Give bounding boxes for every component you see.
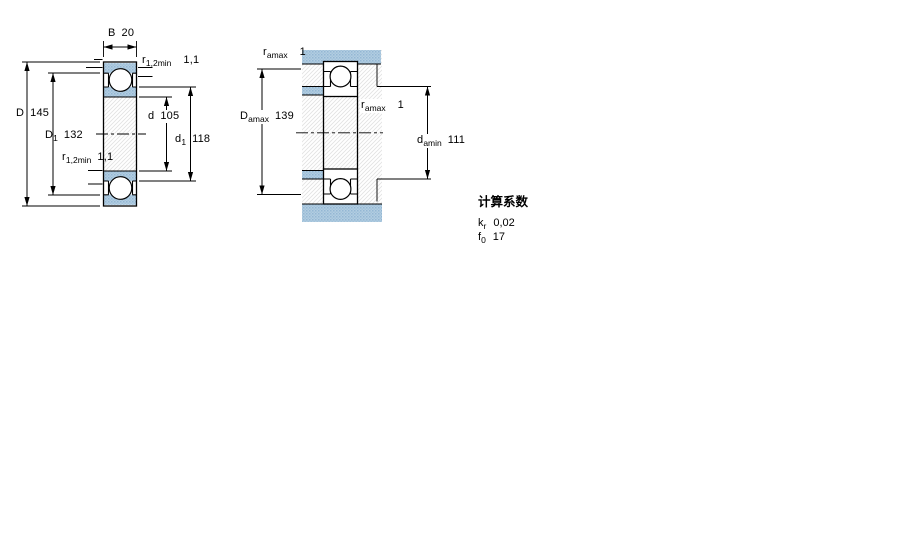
shaft-shoulder-bottom [302,171,324,180]
dim-value: 20 [122,27,135,39]
dim-label-ramax-top: ramax1 [263,46,306,60]
dim-value: 145 [30,107,49,119]
dim-label-Damax: Damax139 [239,110,295,124]
dim-subscript: amax [267,50,288,60]
ball-bottom-right-view [330,179,351,200]
dim-value: 111 [448,134,465,146]
dim-label-D1: D1132 [45,129,83,143]
factor-row-kr: kr0,02 [478,217,515,231]
dim-value: 1 [398,99,404,111]
bearing-dimension-drawing-page: B20 r1,2min1,1 D145 D1132 r1,2min1,1 d10… [0,0,900,560]
ball-top [109,69,132,92]
ball-bottom [109,177,132,200]
dim-label-damin: damin111 [416,134,466,148]
calculation-factors-heading: 计算系数 [478,195,528,209]
dim-value: 139 [275,110,294,122]
dim-subscript: 1 [53,133,58,143]
dim-label-D: D145 [16,107,49,120]
dim-label-d1: d1118 [175,133,210,147]
dim-label-ramax-mid: ramax1 [360,99,405,113]
dim-label-r12-bottom: r1,2min1,1 [62,151,113,165]
factor-value: 0,02 [493,217,514,229]
dim-symbol: D [16,107,24,119]
factor-subscript: r [484,221,487,231]
dim-subscript: amin [423,138,441,148]
dim-subscript: amax [365,103,386,113]
dim-subscript: 1 [181,137,186,147]
dim-label-B: B20 [108,27,134,40]
dim-subscript: amax [248,114,269,124]
housing-section-bottom [302,204,382,222]
dim-subscript: 1,2min [146,58,172,68]
shaft-shoulder-top [302,87,324,96]
dim-value: 1,1 [183,54,199,66]
dim-value: 132 [64,129,83,141]
dim-label-r12-top: r1,2min1,1 [142,54,199,68]
dim-value: 1,1 [97,151,113,163]
right-view-mounting [257,50,431,222]
bearing-drawing [0,0,900,560]
dim-symbol: d [148,110,154,122]
dim-value: 1 [300,46,306,58]
dim-label-d: d105 [147,110,180,123]
dim-symbol: D [240,110,248,122]
ball-top-right-view [330,66,351,87]
dim-subscript: 1,2min [66,155,92,165]
dim-symbol: B [108,27,116,39]
factor-row-f0: f017 [478,231,505,245]
dim-value: 105 [160,110,179,122]
dim-value: 118 [192,133,210,145]
dim-symbol: D [45,129,53,141]
factor-subscript: 0 [481,235,486,245]
factor-value: 17 [493,231,505,243]
